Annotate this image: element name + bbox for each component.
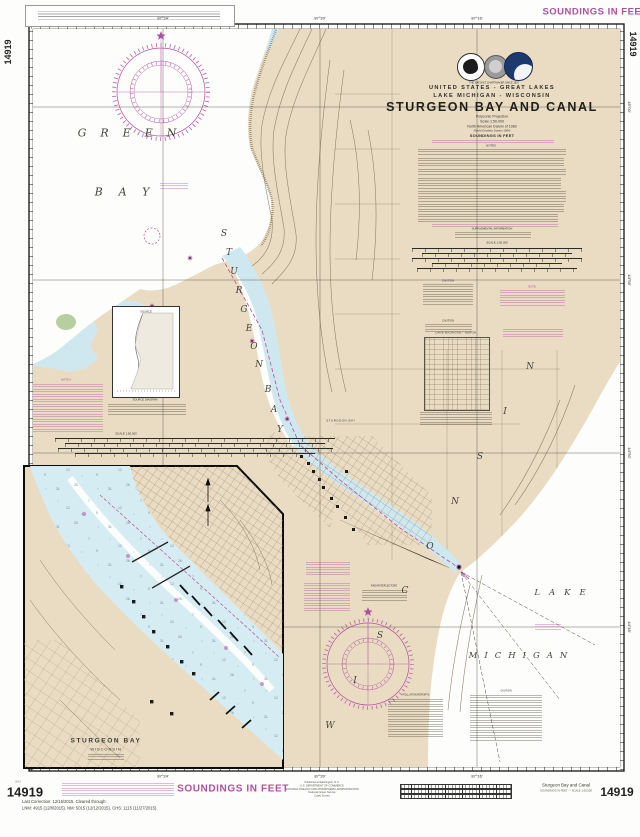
scale-label-titleblock: SCALE 1:50,000 — [486, 242, 508, 245]
print-year: 2015 — [15, 781, 21, 784]
scatter-letter: 44°55' — [627, 274, 632, 285]
scale-label-left: SCALE 1:50,000 — [115, 433, 137, 436]
scatter-letter: 87°24' — [157, 774, 168, 779]
chart-title: STURGEON BAY AND CANAL — [386, 100, 598, 114]
green-bay-label-1: GREEN — [64, 127, 191, 140]
scatter-letter: I — [503, 407, 507, 417]
scatter-letter: 44°45' — [627, 621, 632, 632]
scatter-letter: N — [526, 362, 534, 372]
title-datum: North American Datum of 1983 — [467, 125, 516, 129]
caution3-header: CAUTION — [500, 690, 511, 693]
water-level-table — [424, 337, 490, 411]
scatter-letter: S — [221, 229, 227, 239]
note-a-header: NOTE A — [61, 379, 71, 382]
scatter-letter: G — [240, 305, 247, 315]
scatter-letter: R — [236, 286, 243, 296]
lake-michigan-label-1: LAKE — [525, 588, 594, 598]
title-soundings: SOUNDINGS IN FEET — [470, 134, 515, 138]
scatter-letter: 45°00' — [627, 101, 632, 112]
inset-state: WISCONSIN — [90, 747, 122, 752]
city-label: STURGEON BAY — [326, 419, 355, 423]
green-bay-label-2: BAY — [79, 186, 166, 199]
chart-number-left: 14919 — [3, 39, 13, 64]
scatter-letter: N — [451, 497, 459, 507]
notes-header: NOTES — [486, 145, 496, 148]
scatter-letter: 44°50' — [627, 447, 632, 458]
soundings-note-top: SOUNDINGS IN FEET — [542, 7, 640, 18]
scatter-letter: 87°16' — [471, 16, 482, 21]
scatter-letter: A — [271, 405, 278, 415]
title-datum2: (World Geodetic System 1984) — [474, 130, 511, 133]
margin-note-box — [25, 5, 235, 27]
scatter-letter: S — [477, 452, 483, 462]
radar-reflectors-header: RADAR REFLECTORS — [371, 585, 397, 588]
lake-michigan-label-2: MICHIGAN — [462, 651, 575, 661]
source-header: SOURCE — [140, 311, 152, 314]
inset-title: STURGEON BAY — [71, 738, 142, 745]
supplemental-header: SUPPLEMENTAL INFORMATION — [472, 228, 513, 231]
scatter-letter: O — [426, 542, 433, 552]
source-caption: SOURCE DIAGRAM — [133, 399, 158, 402]
caution2-header: CAUTION — [442, 320, 454, 323]
last-correction-note: Last Correction: 12/16/2015. Cleared thr… — [22, 799, 156, 811]
water-table-header: LAKE MICHIGAN - HURON — [436, 332, 477, 335]
scatter-letter: E — [246, 324, 253, 334]
title-scale: Scale 1:50,000 — [480, 120, 504, 124]
scatter-letter: B — [265, 385, 272, 395]
scatter-letter: T — [226, 248, 232, 258]
noaa-logo-icon — [504, 52, 533, 81]
corps-crest-logo-icon — [457, 53, 485, 81]
chart-number-bottom-right: 14919 — [600, 785, 633, 799]
chart-number-right: 14919 — [628, 31, 638, 56]
scatter-letter: 87°20' — [314, 16, 325, 21]
scatter-letter: Y — [277, 425, 283, 435]
footer-title: Sturgeon Bay and Canal — [542, 783, 590, 788]
scatter-letter: W — [325, 721, 334, 731]
soundings-note-bottom: SOUNDINGS IN FEET — [177, 784, 289, 795]
footer-magenta-note — [62, 783, 174, 796]
chart-page: 12 7 26 9 31 — [0, 0, 640, 837]
scatter-letter: 87°16' — [471, 774, 482, 779]
scatter-letter: S — [377, 631, 383, 641]
title-region: UNITED STATES - GREAT LAKES — [429, 85, 555, 91]
scatter-letter: 87°20' — [314, 774, 325, 779]
marsh-area — [56, 314, 76, 330]
footer-subtitle: SOUNDINGS IN FEET — SCALE 1:50,000 — [540, 790, 592, 793]
inset-map — [24, 466, 283, 768]
note-right-header: NOTE — [528, 286, 535, 289]
scatter-letter: I — [353, 676, 357, 686]
pollution-header: POLLUTION REPORTS — [403, 694, 430, 697]
magenta-note-lines — [432, 140, 554, 145]
scatter-letter: C — [402, 586, 409, 596]
source-diagram-box: SOURCE — [112, 306, 180, 398]
scatter-letter: N — [255, 360, 263, 370]
caution1-header: CAUTION — [442, 280, 454, 283]
scatter-letter: U — [230, 267, 238, 277]
scatter-letter: 87°24' — [157, 16, 168, 21]
title-projection: Polyconic Projection — [476, 115, 508, 119]
scatter-letter: O — [250, 342, 257, 352]
chart-number-bottom-left: 14919 — [7, 785, 43, 800]
title-subregion: LAKE MICHIGAN - WISCONSIN — [433, 93, 550, 99]
